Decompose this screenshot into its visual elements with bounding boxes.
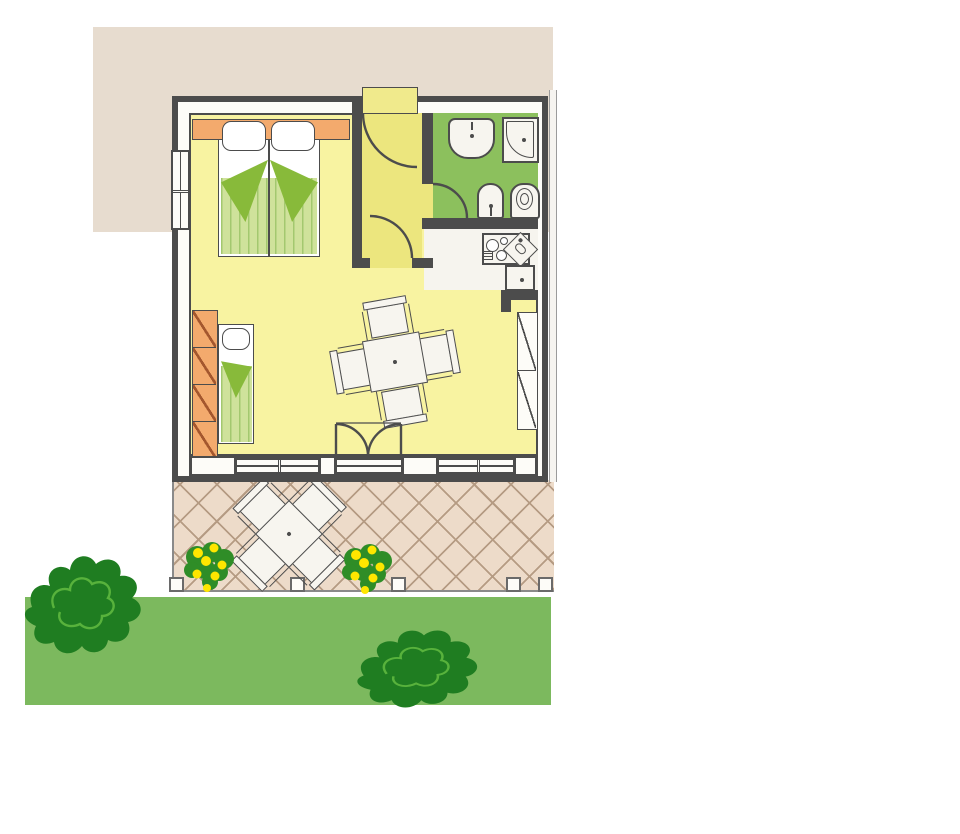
wall-hallway-right bbox=[422, 113, 433, 184]
washbasin bbox=[448, 118, 495, 159]
shower-drain bbox=[522, 138, 526, 142]
closet-compartment bbox=[518, 372, 536, 428]
party-wall bbox=[549, 90, 557, 482]
window-left-wall bbox=[171, 150, 190, 230]
window-glazing-line bbox=[439, 465, 513, 467]
washbasin-spout bbox=[471, 122, 473, 130]
wall-hallway-bottom-right-stub bbox=[412, 258, 433, 268]
wall-pier bbox=[320, 457, 335, 475]
lawn bbox=[25, 597, 551, 705]
closet-right bbox=[517, 312, 538, 430]
wardrobe-orange bbox=[192, 310, 218, 460]
wall-pier bbox=[191, 457, 235, 475]
window-garden-left bbox=[235, 458, 320, 474]
bidet bbox=[477, 183, 504, 219]
washbasin-faucet bbox=[470, 134, 474, 138]
wardrobe-compartment bbox=[193, 422, 216, 458]
window-mullion bbox=[477, 460, 480, 472]
dining-chair bbox=[381, 385, 424, 421]
cabinet-handle bbox=[520, 278, 524, 282]
hallway-floor bbox=[362, 113, 422, 258]
wall-pier bbox=[515, 457, 536, 475]
shower-tray bbox=[506, 121, 534, 158]
wall-hallway-left bbox=[352, 102, 362, 268]
floor-plan-illustration bbox=[0, 0, 960, 834]
wardrobe-compartment bbox=[193, 311, 216, 348]
wall-hallway-bottom-left-stub bbox=[352, 258, 370, 268]
hallway-threshold bbox=[370, 258, 412, 268]
stove-grill bbox=[483, 251, 493, 260]
shower bbox=[502, 117, 539, 163]
wall-pier bbox=[403, 457, 437, 475]
toilet bbox=[510, 183, 540, 219]
pillow bbox=[222, 328, 250, 350]
kitchen-cabinet bbox=[505, 265, 535, 291]
bathroom-door-threshold bbox=[422, 184, 433, 218]
window-garden-right bbox=[437, 458, 515, 474]
patio-post bbox=[169, 577, 184, 592]
pillow bbox=[271, 121, 315, 151]
patio-post bbox=[391, 577, 406, 592]
threshold-line bbox=[337, 465, 401, 467]
wall-kitchen-left-stub bbox=[501, 290, 511, 312]
kitchen-sink-faucet bbox=[518, 237, 523, 242]
patio-post bbox=[538, 577, 553, 592]
closet-compartment bbox=[518, 313, 536, 371]
patio-post bbox=[506, 577, 521, 592]
french-door-threshold bbox=[335, 458, 403, 474]
wall-bath-kitchen-divider bbox=[422, 218, 538, 229]
entrance-opening bbox=[362, 87, 418, 114]
wardrobe-compartment bbox=[193, 348, 216, 385]
kitchen-sink-basin bbox=[513, 242, 527, 256]
wardrobe-compartment bbox=[193, 385, 216, 422]
double-bed-center-line bbox=[268, 140, 270, 256]
bidet-spout bbox=[490, 207, 492, 216]
pillow bbox=[222, 121, 266, 151]
window-mullion bbox=[278, 460, 281, 472]
patio bbox=[172, 480, 554, 592]
toilet-seat bbox=[520, 193, 529, 205]
window-mullion bbox=[173, 190, 188, 193]
